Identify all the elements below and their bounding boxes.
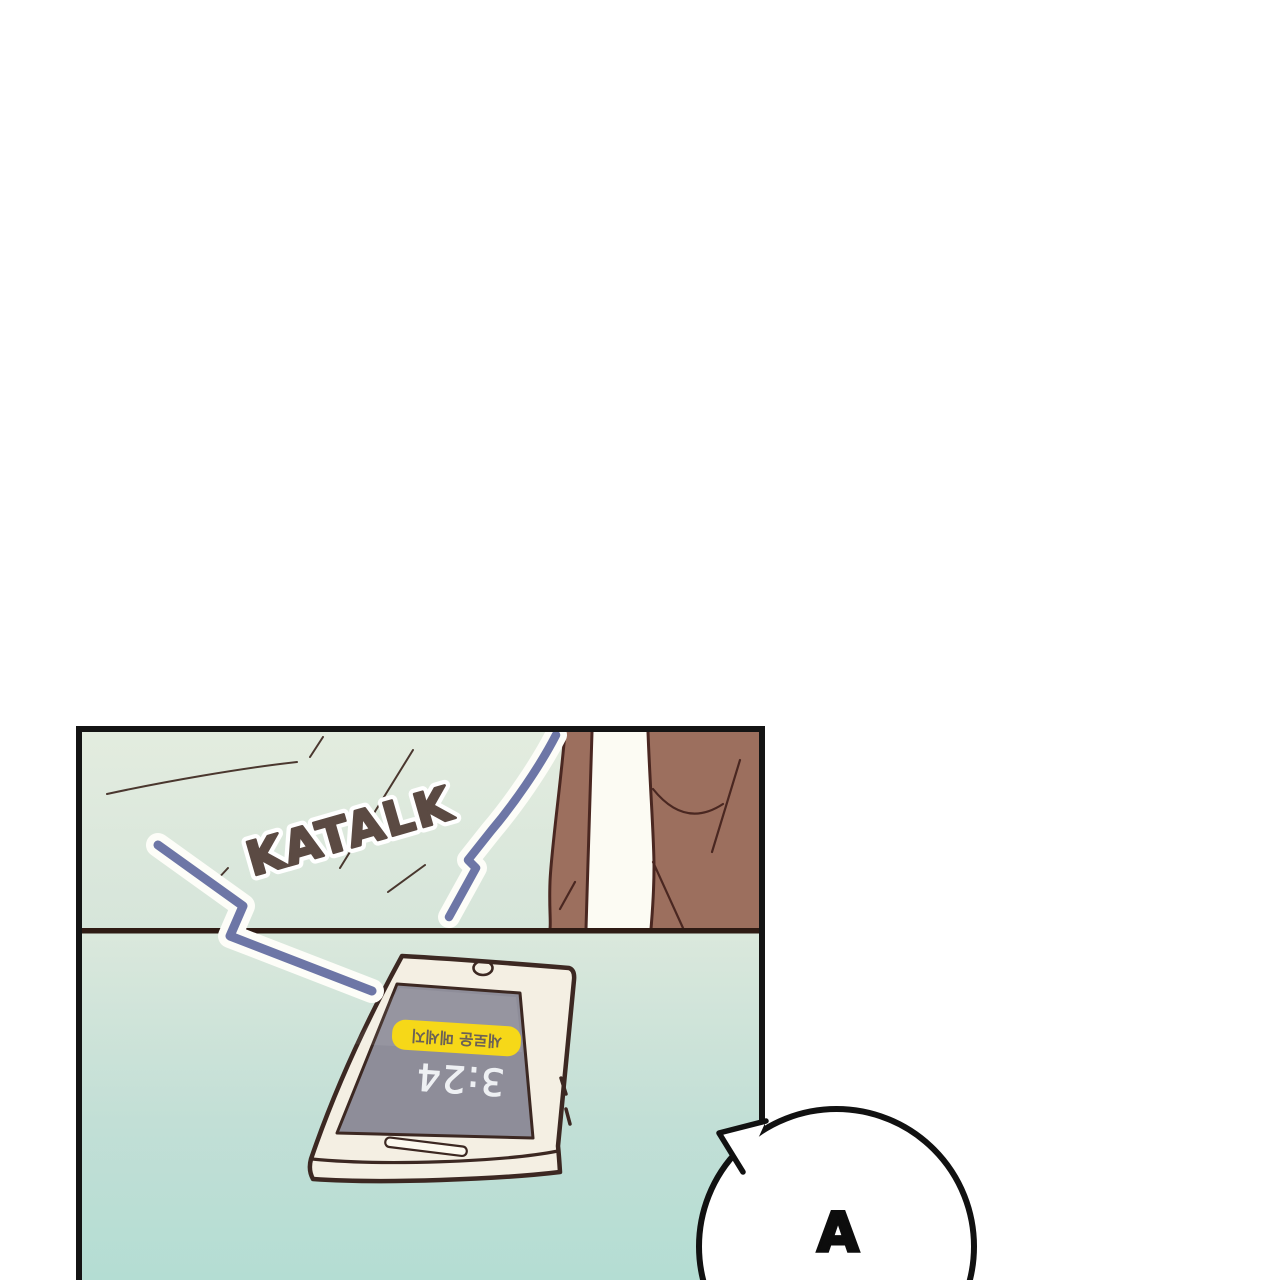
speech-bubble-text: A	[798, 1198, 878, 1268]
jacket-right	[648, 732, 759, 929]
webtoon-page: 새로운 메세지 3:24 KATALK KATALK A	[0, 0, 1280, 1280]
speech-bubble-tail	[700, 1100, 790, 1190]
shirt	[586, 732, 654, 929]
panel-artwork: 새로운 메세지 3:24 KATALK KATALK	[82, 732, 759, 1280]
phone-clock-text: 3:24	[414, 1054, 506, 1103]
comic-panel: 새로운 메세지 3:24 KATALK KATALK	[76, 726, 765, 1280]
table-edge-line	[82, 928, 759, 934]
person-torso	[550, 732, 759, 929]
